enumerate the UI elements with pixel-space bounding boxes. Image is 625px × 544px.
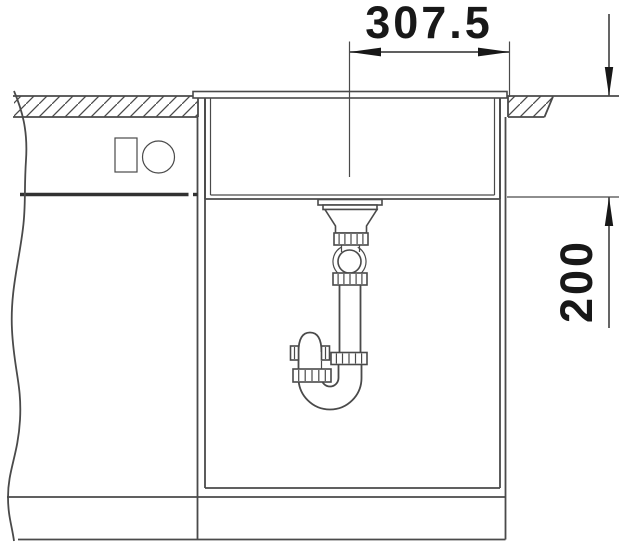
- strainer-body: [325, 210, 377, 234]
- dimension-right-value: 200: [551, 239, 602, 323]
- elbow-ball: [338, 250, 361, 273]
- dimension-vertical: 200: [507, 14, 619, 328]
- break-line: [8, 91, 26, 541]
- drain-flange: [318, 200, 382, 206]
- arrowhead-right: [478, 48, 510, 57]
- dimension-horizontal: 307.5: [350, 0, 510, 177]
- arrowhead-up: [605, 197, 613, 226]
- countertop-hatch-right: [508, 97, 553, 118]
- trap-inlet-nut: [331, 353, 367, 365]
- panel-symbol-circle: [143, 141, 175, 173]
- adjacent-panel: [20, 138, 198, 195]
- dimension-top-value: 307.5: [365, 0, 493, 48]
- base-cabinet: [7, 98, 506, 540]
- arrowhead-down: [605, 67, 613, 96]
- strainer-nut: [334, 233, 368, 245]
- panel-symbol-rect: [115, 138, 137, 172]
- sink-section-diagram: 307.5 200: [0, 0, 625, 544]
- countertop: [13, 96, 619, 117]
- technical-drawing-canvas: 307.5 200: [0, 0, 625, 544]
- drain-assembly: [291, 200, 383, 410]
- arrowhead-left: [350, 48, 382, 57]
- trap-outlet-nut: [293, 369, 331, 382]
- elbow-nut: [333, 273, 367, 285]
- trap-outlet-dome: [299, 333, 322, 353]
- countertop-hatch-left: [13, 97, 198, 118]
